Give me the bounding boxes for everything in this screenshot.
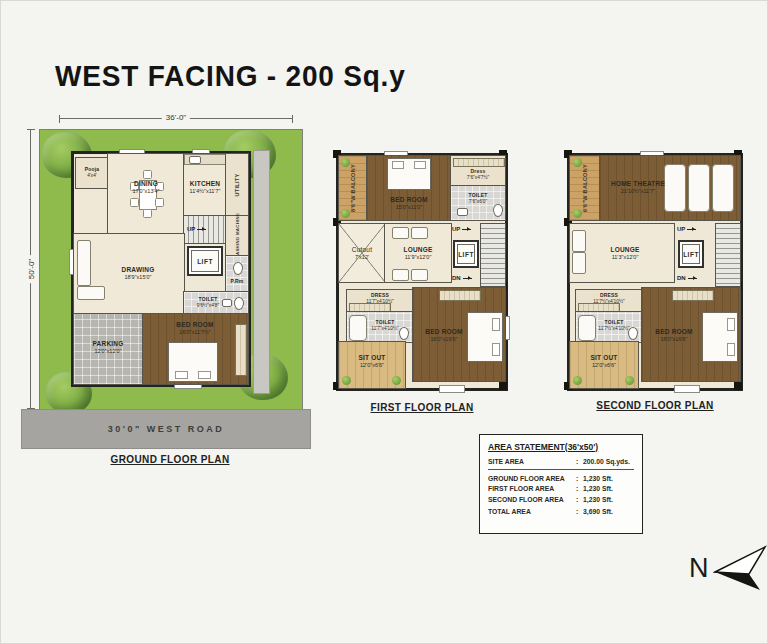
wardrobe-icon — [235, 324, 247, 376]
toilet-icon — [493, 204, 503, 217]
gf-room-utility: UTILITY — [226, 154, 248, 216]
second-floor-plan: 6'6"W BALCONY HOME THEATRE 21'10½"x11'7"… — [567, 153, 743, 391]
window — [439, 385, 465, 393]
sf-sitout: SIT OUT 12'0"x6'6" — [570, 342, 638, 388]
ground-floor-site: Pooja 4'x4' DINING 17'0"x13'4" KITCHEN — [39, 129, 303, 411]
sofa-icon — [411, 227, 428, 239]
window — [674, 385, 700, 393]
ground-floor-house: Pooja 4'x4' DINING 17'0"x13'4" KITCHEN — [71, 151, 251, 387]
sf-dn-label: DN — [677, 275, 697, 281]
plant-icon — [341, 158, 350, 167]
arrow-icon — [463, 278, 472, 279]
width-dimension-label: 36'-0" — [162, 113, 190, 122]
wardrobe-icon — [453, 158, 505, 167]
sf-stairs — [716, 224, 740, 286]
plant-icon — [342, 376, 351, 385]
area-statement-title: AREA STATEMENT(36'x50') — [488, 442, 634, 452]
area-row-site: SITE AREA:200.00 Sq.yds. — [488, 458, 634, 465]
side-passage — [253, 150, 270, 394]
gf-room-bedroom: BED ROOM 16'0"x11'7½" — [142, 314, 248, 384]
sf-dress: DRESS 11'7½"x4'10½" — [576, 290, 642, 312]
ff-lift: LIFT — [453, 240, 479, 268]
arrow-icon — [687, 229, 696, 230]
area-row-second: SECOND FLOOR AREA:1,230 Sft. — [488, 496, 634, 503]
plant-icon — [573, 158, 582, 167]
ff-up-label: UP — [452, 226, 471, 232]
ff-bedroom-bottom: BED ROOM 16'0"x16'6" — [413, 288, 505, 381]
ff-cutout: Cutout 7'x12' — [339, 224, 385, 282]
gf-lift: LIFT — [187, 246, 223, 276]
gf-stairs: UP — [184, 216, 226, 243]
gf-room-prm: P.Rm — [226, 256, 248, 292]
plant-icon — [341, 209, 350, 218]
column-marker — [499, 382, 507, 390]
width-dimension-line: 36'-0" — [59, 118, 293, 119]
area-statement-box: AREA STATEMENT(36'x50') SITE AREA:200.00… — [479, 434, 643, 534]
area-row-ground: GROUND FLOOR AREA:1,230 Sft. — [488, 475, 634, 482]
gf-room-dining: DINING 17'0"x13'4" — [108, 154, 184, 234]
ff-dn-label: DN — [452, 275, 472, 281]
column-marker — [734, 382, 742, 390]
sofa-icon — [392, 269, 409, 281]
arrow-icon — [688, 278, 697, 279]
dresser-icon — [672, 290, 714, 301]
toilet-icon — [233, 262, 243, 275]
gf-parking: PARKING 12'0"x12'0" — [74, 314, 142, 384]
divider — [488, 469, 634, 470]
ground-floor-caption: GROUND FLOOR PLAN — [39, 454, 301, 465]
floor-plan-sheet: WEST FACING - 200 Sq.y 36'-0" 50'-0" Poo… — [0, 0, 768, 644]
first-floor-plan: 8'6"W BALCONY BED ROOM 15'0"x11'0" Dress… — [336, 153, 508, 391]
north-label: N — [689, 553, 709, 584]
stairs-up-label: UP — [187, 226, 206, 232]
plant-icon — [573, 376, 582, 385]
sofa-icon — [411, 269, 428, 281]
sofa-icon — [77, 286, 105, 300]
sink-icon — [189, 156, 201, 164]
ff-dress-bottom: DRESS 11'7"x4'10½" — [347, 290, 413, 312]
first-floor-caption: FIRST FLOOR PLAN — [336, 402, 508, 413]
gf-room-kitchen: KITCHEN 11'4½"x11'7" — [184, 154, 226, 216]
bed-icon — [168, 342, 218, 382]
plant-icon — [573, 209, 582, 218]
gf-room-washing: WASHING MACHINE — [226, 216, 248, 256]
bed-icon — [387, 158, 431, 190]
west-road: 30'0" WEST ROAD — [21, 409, 311, 449]
ff-toilet-top: TOILET 7'6"x6'0" — [451, 186, 505, 220]
sf-lounge: LOUNGE 11'3"x12'0" — [570, 224, 674, 282]
ff-dress-top: Dress 7'6"x4'7½" — [451, 156, 505, 186]
ff-bedroom-top: BED ROOM 15'0"x11'0" — [367, 156, 451, 220]
plant-icon — [625, 376, 634, 385]
sofa-icon — [77, 240, 91, 286]
ff-stairs — [481, 224, 505, 286]
second-floor-caption: SECOND FLOOR PLAN — [567, 400, 743, 411]
ff-sitout: SIT OUT 12'0"x6'6" — [339, 342, 405, 388]
ff-lounge: LOUNGE 11'9"x12'0" — [385, 224, 451, 282]
gf-room-toilet: TOILET 9'6½"x4'8" — [184, 292, 248, 314]
area-row-first: FIRST FLOOR AREA:1,230 Sft. — [488, 485, 634, 492]
sf-lift: LIFT — [678, 240, 704, 268]
sf-bedroom: BED ROOM 16'0"x16'6" — [642, 288, 740, 381]
page-title: WEST FACING - 200 Sq.y — [55, 59, 406, 94]
sofa-icon — [392, 227, 409, 239]
sink-icon — [457, 208, 468, 216]
road-label: 30'0" WEST ROAD — [108, 424, 224, 434]
sf-home-theatre: HOME THEATRE 21'10½"x11'7" — [600, 156, 740, 220]
north-arrow-icon — [713, 545, 768, 597]
dresser-icon — [439, 290, 481, 301]
gf-room-pooja: Pooja 4'x4' — [76, 158, 108, 188]
plant-icon — [392, 376, 401, 385]
height-dimension-line: 50'-0" — [30, 129, 31, 409]
ff-balcony: 8'6"W BALCONY — [339, 156, 367, 220]
arrow-icon — [462, 229, 471, 230]
arrow-icon — [197, 229, 206, 230]
height-dimension-label: 50'-0" — [27, 255, 36, 283]
sf-up-label: UP — [677, 226, 696, 232]
area-row-total: TOTAL AREA:3,690 Sft. — [488, 508, 634, 515]
